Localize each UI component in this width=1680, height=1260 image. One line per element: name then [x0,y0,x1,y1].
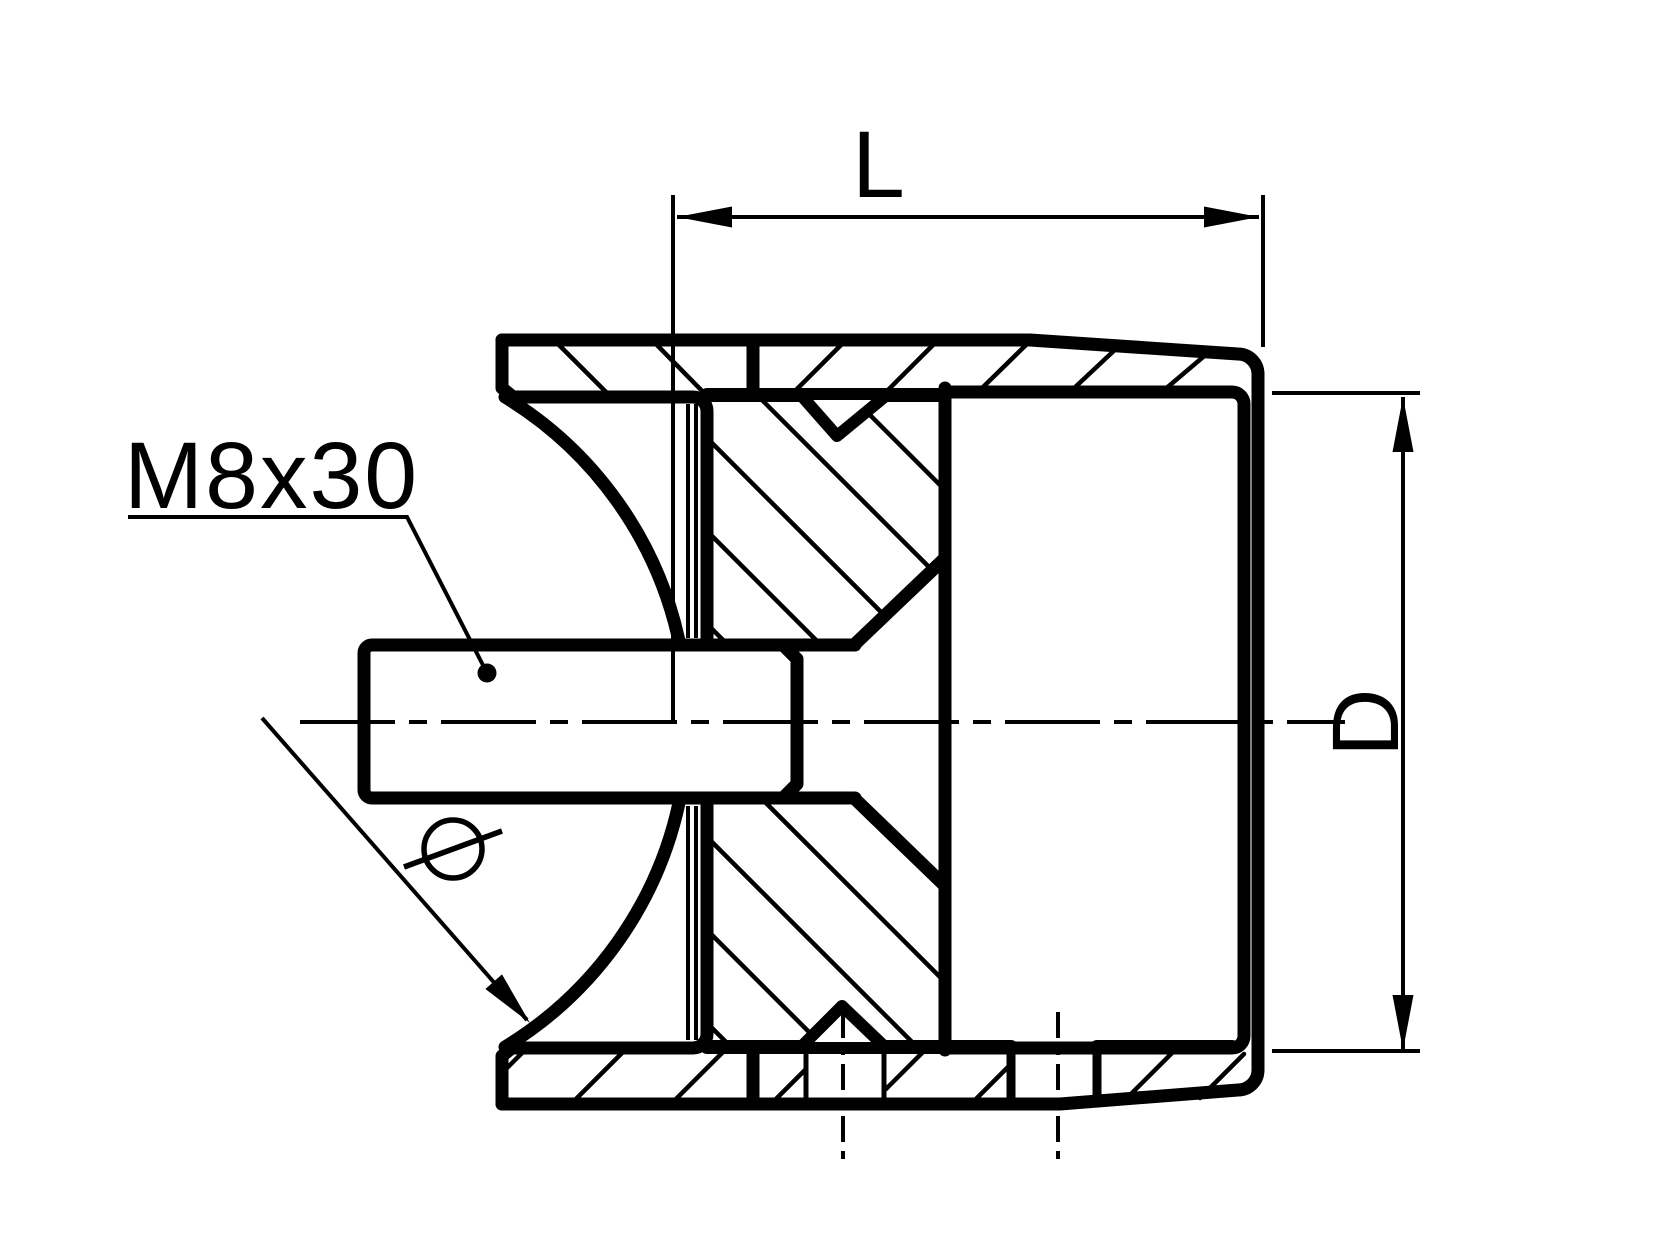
dim-L-label: L [852,112,907,218]
drawing-background [0,0,1680,1260]
bolt-callout-leader-dot [478,664,497,683]
dim-D-label: D [1313,686,1419,757]
section-drawing-canvas: L D M8x30 [0,0,1680,1260]
bolt-callout-label: M8x30 [124,423,419,529]
technical-drawing-page: L D M8x30 [0,0,1680,1260]
